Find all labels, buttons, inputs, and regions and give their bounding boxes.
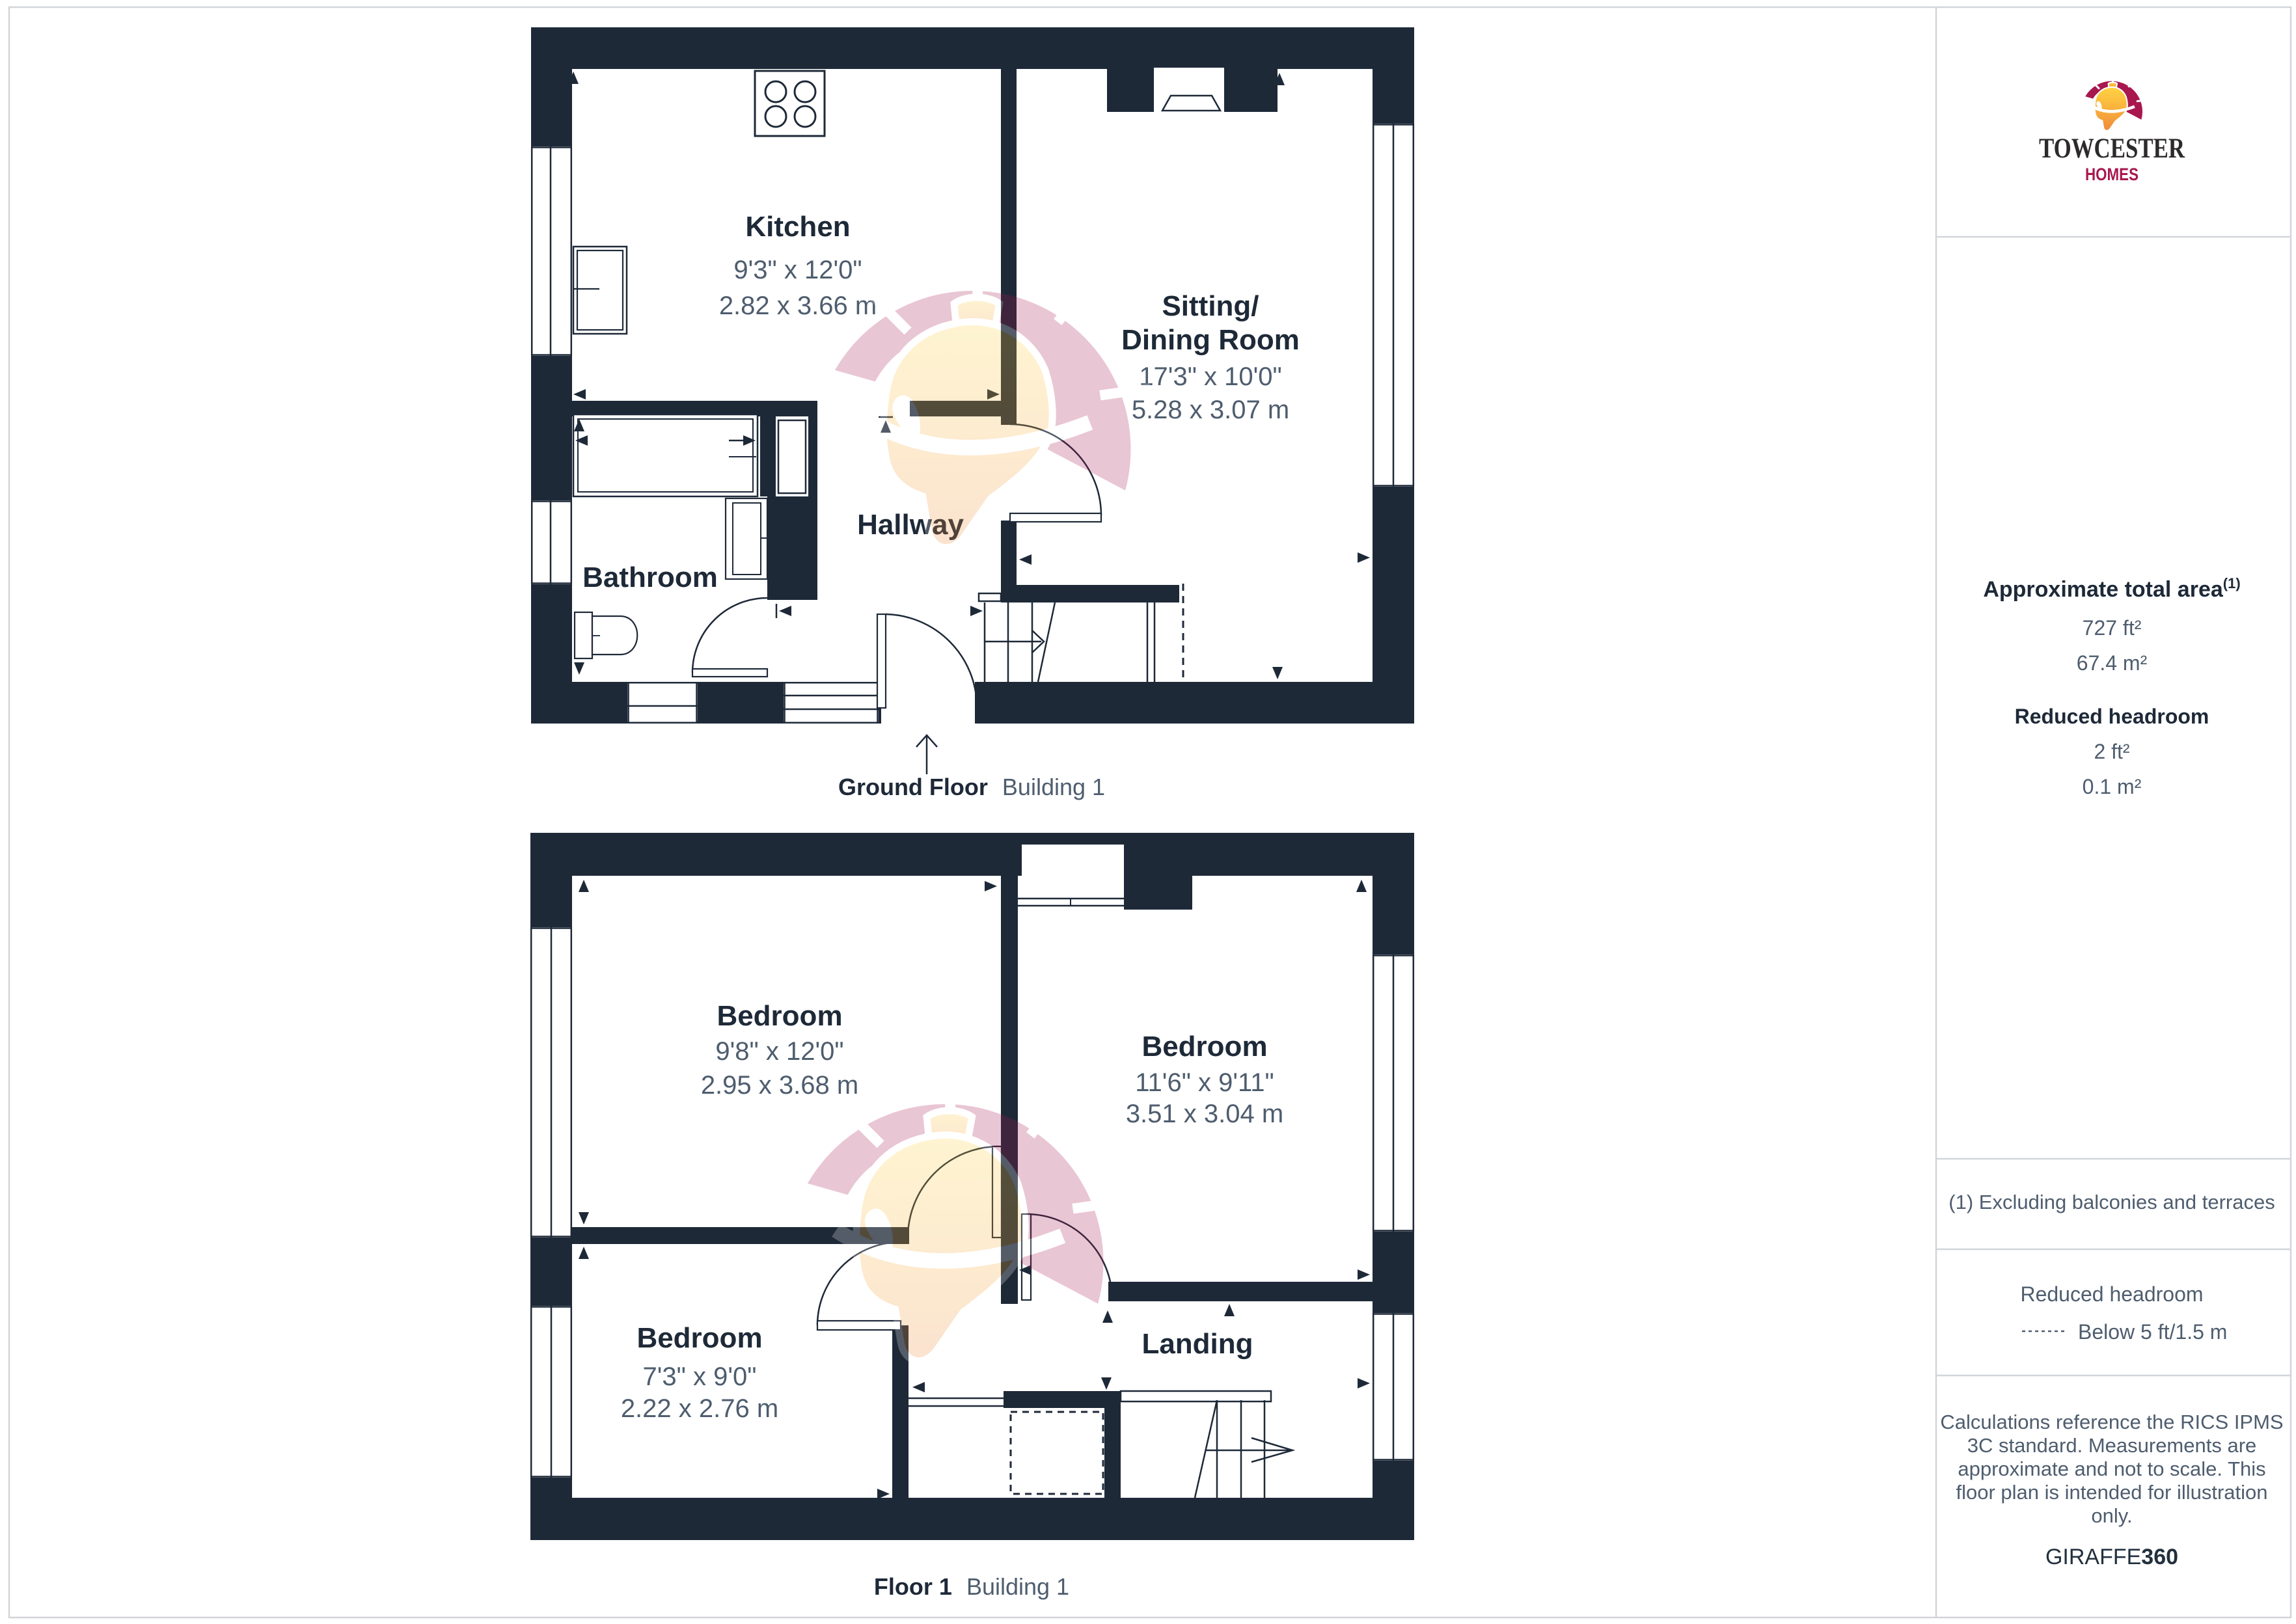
svg-text:17'3" x 10'0": 17'3" x 10'0" [1139, 362, 1281, 391]
svg-text:9'8" x 12'0": 9'8" x 12'0" [715, 1037, 843, 1066]
svg-text:Approximate total area(1): Approximate total area(1) [1983, 575, 2240, 602]
svg-text:67.4 m²: 67.4 m² [2077, 651, 2148, 675]
svg-text:Sitting/: Sitting/ [1162, 290, 1259, 322]
svg-text:727 ft²: 727 ft² [2083, 616, 2142, 640]
svg-text:7'3" x 9'0": 7'3" x 9'0" [643, 1362, 757, 1391]
svg-text:Landing: Landing [1141, 1328, 1253, 1360]
svg-text:3.51 x 3.04 m: 3.51 x 3.04 m [1126, 1100, 1283, 1128]
svg-text:0.1 m²: 0.1 m² [2083, 775, 2142, 798]
svg-text:Bedroom: Bedroom [636, 1322, 762, 1354]
svg-text:only.: only. [2091, 1504, 2132, 1527]
svg-text:3C standard. Measurements are: 3C standard. Measurements are [1967, 1434, 2257, 1457]
svg-text:2.22 x 2.76 m: 2.22 x 2.76 m [621, 1394, 778, 1423]
svg-text:HOMES: HOMES [2085, 165, 2139, 184]
svg-text:Floor 1Building 1: Floor 1Building 1 [874, 1573, 1069, 1600]
svg-text:Ground FloorBuilding 1: Ground FloorBuilding 1 [838, 774, 1105, 800]
svg-text:Reduced headroom: Reduced headroom [2015, 705, 2209, 728]
svg-text:2.95 x 3.68 m: 2.95 x 3.68 m [701, 1071, 858, 1100]
svg-text:Below 5 ft/1.5 m: Below 5 ft/1.5 m [2078, 1320, 2227, 1344]
svg-text:11'6" x 9'11": 11'6" x 9'11" [1135, 1068, 1274, 1097]
svg-text:Kitchen: Kitchen [745, 211, 850, 243]
svg-text:Bathroom: Bathroom [582, 562, 718, 593]
svg-text:Reduced headroom: Reduced headroom [2020, 1282, 2203, 1306]
svg-text:approximate and not to scale.: approximate and not to scale. This [1958, 1457, 2265, 1480]
svg-text:2 ft²: 2 ft² [2094, 740, 2129, 763]
svg-text:Calculations reference the RIC: Calculations reference the RICS IPMS [1940, 1411, 2283, 1433]
svg-text:Bedroom: Bedroom [1141, 1031, 1267, 1062]
svg-text:5.28 x 3.07 m: 5.28 x 3.07 m [1132, 396, 1289, 424]
svg-text:GIRAFFE360: GIRAFFE360 [2045, 1545, 2178, 1569]
svg-text:TOWCESTER: TOWCESTER [2039, 133, 2185, 164]
svg-text:Dining Room: Dining Room [1121, 324, 1300, 356]
svg-text:2.82 x 3.66 m: 2.82 x 3.66 m [719, 291, 877, 320]
svg-text:(1) Excluding balconies and te: (1) Excluding balconies and terraces [1948, 1191, 2275, 1213]
svg-text:9'3" x 12'0": 9'3" x 12'0" [733, 256, 862, 284]
svg-text:floor plan is intended for ill: floor plan is intended for illustration [1956, 1481, 2267, 1504]
svg-text:Bedroom: Bedroom [717, 1000, 842, 1032]
